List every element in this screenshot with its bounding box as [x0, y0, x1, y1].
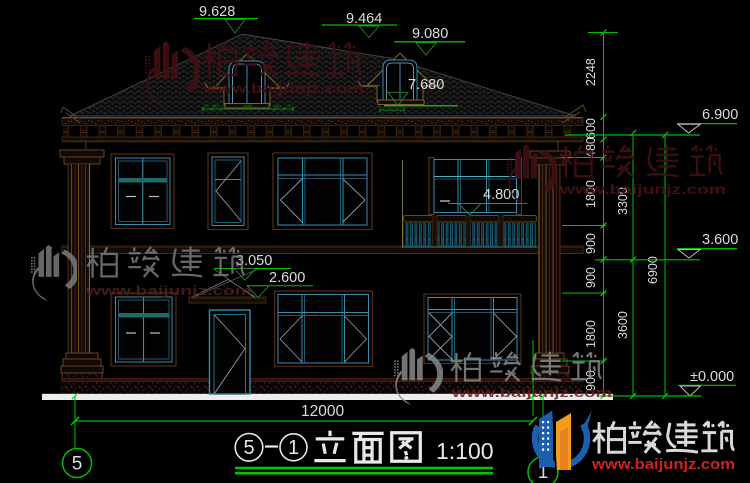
svg-text:1: 1: [288, 437, 299, 459]
svg-text:www.baijunjz.com: www.baijunjz.com: [559, 182, 726, 197]
svg-text:240: 240: [212, 103, 219, 108]
svg-text:www.baijunjz.com: www.baijunjz.com: [85, 283, 252, 298]
svg-text:5: 5: [72, 454, 83, 475]
svg-text:www.baijunjz.com: www.baijunjz.com: [591, 457, 735, 473]
svg-text:3600: 3600: [616, 311, 630, 339]
svg-text:2248: 2248: [584, 58, 598, 86]
svg-text:1800: 1800: [584, 320, 598, 348]
svg-text:900: 900: [584, 267, 598, 288]
svg-text:www.baijunjz.com: www.baijunjz.com: [202, 80, 364, 96]
svg-text:240: 240: [274, 103, 281, 108]
svg-text:9.628: 9.628: [199, 4, 235, 20]
svg-text:600: 600: [584, 118, 598, 139]
svg-text:3.600: 3.600: [702, 232, 738, 248]
svg-text:4.800: 4.800: [483, 187, 519, 203]
svg-text:70: 70: [287, 103, 292, 108]
svg-text:±0.000: ±0.000: [690, 369, 734, 385]
svg-text:900: 900: [584, 233, 598, 254]
svg-text:www.baijunjz.com: www.baijunjz.com: [451, 386, 612, 400]
svg-text:7.680: 7.680: [408, 77, 444, 93]
svg-text:2.600: 2.600: [269, 270, 305, 286]
svg-text:70: 70: [204, 103, 209, 108]
svg-text:5: 5: [243, 437, 254, 459]
svg-text:1:100: 1:100: [436, 438, 494, 464]
svg-text:9.080: 9.080: [412, 26, 448, 42]
svg-text:12000: 12000: [301, 403, 344, 420]
svg-text:1560: 1560: [243, 103, 253, 108]
svg-text:6.900: 6.900: [702, 107, 738, 123]
